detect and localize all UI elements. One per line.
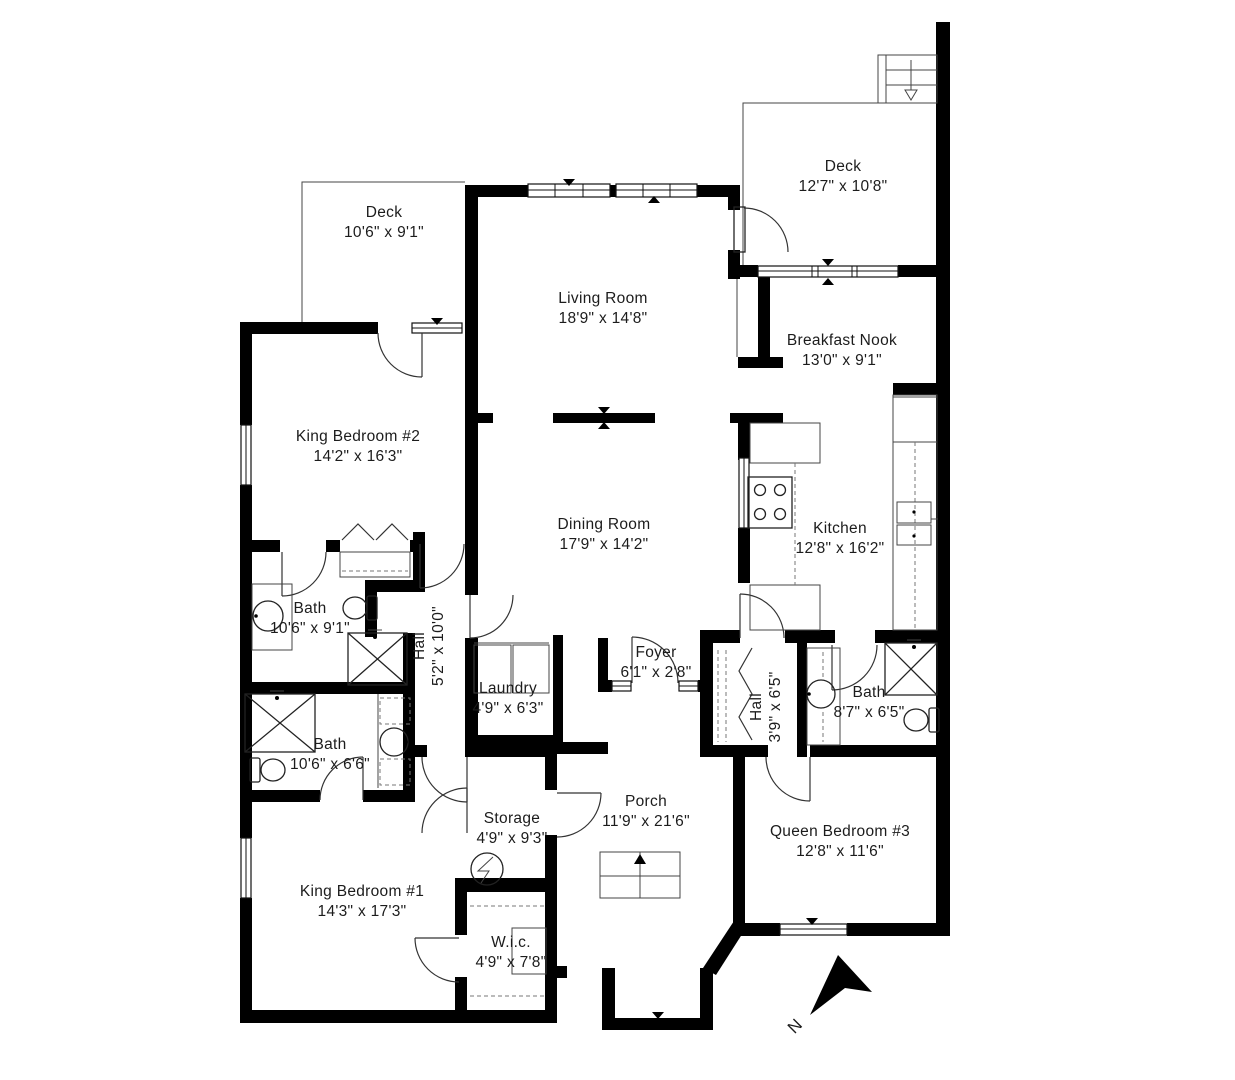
room-dims-bath-2: 10'6" x 6'6" xyxy=(290,756,370,773)
room-dims-foyer: 6'1" x 2'8" xyxy=(620,664,691,681)
svg-text:5'2" x 10'0": 5'2" x 10'0" xyxy=(430,606,447,686)
bifold-door-icon xyxy=(342,524,374,540)
room-dims-bath-3: 8'7" x 6'5" xyxy=(833,704,904,721)
room-dims-breakfast-nook: 13'0" x 9'1" xyxy=(802,352,882,369)
room-label-hall-main: Hall 5'2" x 10'0" xyxy=(411,606,447,686)
room-dims-queen-bedroom-3: 12'8" x 11'6" xyxy=(796,843,884,860)
room-label-king-bedroom-2: King Bedroom #2 xyxy=(296,428,420,445)
kitchen-sink-icon xyxy=(897,502,938,545)
north-arrow-icon: N xyxy=(784,955,872,1037)
room-labels: Deck 10'6" x 9'1" Living Room 18'9" x 14… xyxy=(270,158,910,971)
room-label-breakfast-nook: Breakfast Nook xyxy=(787,332,897,349)
room-dims-bath-1: 10'6" x 9'1" xyxy=(270,620,350,637)
room-dims-kitchen: 12'8" x 16'2" xyxy=(796,540,885,557)
room-dims-king-bedroom-1: 14'3" x 17'3" xyxy=(318,903,407,920)
room-label-wic: W.i.c. xyxy=(491,934,531,951)
room-label-foyer: Foyer xyxy=(635,644,676,661)
room-label-laundry: Laundry xyxy=(479,680,537,697)
deck-stairs xyxy=(878,55,937,103)
room-dims-living-room: 18'9" x 14'8" xyxy=(559,310,648,327)
room-label-bath-2: Bath xyxy=(313,736,346,753)
shower-icon xyxy=(245,691,315,752)
room-label-bath-3: Bath xyxy=(852,684,885,701)
room-dims-storage: 4'9" x 9'3" xyxy=(476,830,547,847)
svg-text:Hall: Hall xyxy=(411,632,428,660)
room-dims-deck-right: 12'7" x 10'8" xyxy=(799,178,888,195)
room-dims-deck-left: 10'6" x 9'1" xyxy=(344,224,424,241)
toilet-icon xyxy=(250,758,285,782)
kitchen-fixtures xyxy=(748,395,938,630)
room-label-dining-room: Dining Room xyxy=(558,516,651,533)
svg-text:Hall: Hall xyxy=(748,693,765,721)
room-label-living-room: Living Room xyxy=(558,290,647,307)
room-dims-king-bedroom-2: 14'2" x 16'3" xyxy=(314,448,403,465)
sink-icon xyxy=(807,680,835,708)
bifold-door-icon xyxy=(376,524,408,540)
toilet-icon xyxy=(904,708,939,732)
room-dims-wic: 4'9" x 7'8" xyxy=(475,954,546,971)
shower-icon xyxy=(348,630,407,685)
room-label-storage: Storage xyxy=(484,810,540,827)
room-dims-laundry: 4'9" x 6'3" xyxy=(472,700,543,717)
porch-steps xyxy=(600,852,680,898)
fridge-icon xyxy=(893,397,937,442)
room-dims-porch: 11'9" x 21'6" xyxy=(602,813,690,830)
stove-icon xyxy=(748,477,792,528)
room-dims-dining-room: 17'9" x 14'2" xyxy=(560,536,649,553)
svg-text:3'9" x 6'5": 3'9" x 6'5" xyxy=(767,671,784,742)
room-label-bath-1: Bath xyxy=(293,600,326,617)
room-label-king-bedroom-1: King Bedroom #1 xyxy=(300,883,424,900)
room-label-deck-left: Deck xyxy=(366,204,403,221)
room-label-queen-bedroom-3: Queen Bedroom #3 xyxy=(770,823,910,840)
room-label-kitchen: Kitchen xyxy=(813,520,867,537)
room-label-porch: Porch xyxy=(625,793,667,810)
shower-icon xyxy=(885,640,937,695)
floor-plan: Deck 10'6" x 9'1" Living Room 18'9" x 14… xyxy=(0,0,1235,1080)
north-label: N xyxy=(784,1015,806,1037)
room-label-deck-right: Deck xyxy=(825,158,862,175)
room-label-hall-bedrooms: Hall 3'9" x 6'5" xyxy=(748,671,784,742)
floor-plan-page: Deck 10'6" x 9'1" Living Room 18'9" x 14… xyxy=(0,0,1235,1080)
